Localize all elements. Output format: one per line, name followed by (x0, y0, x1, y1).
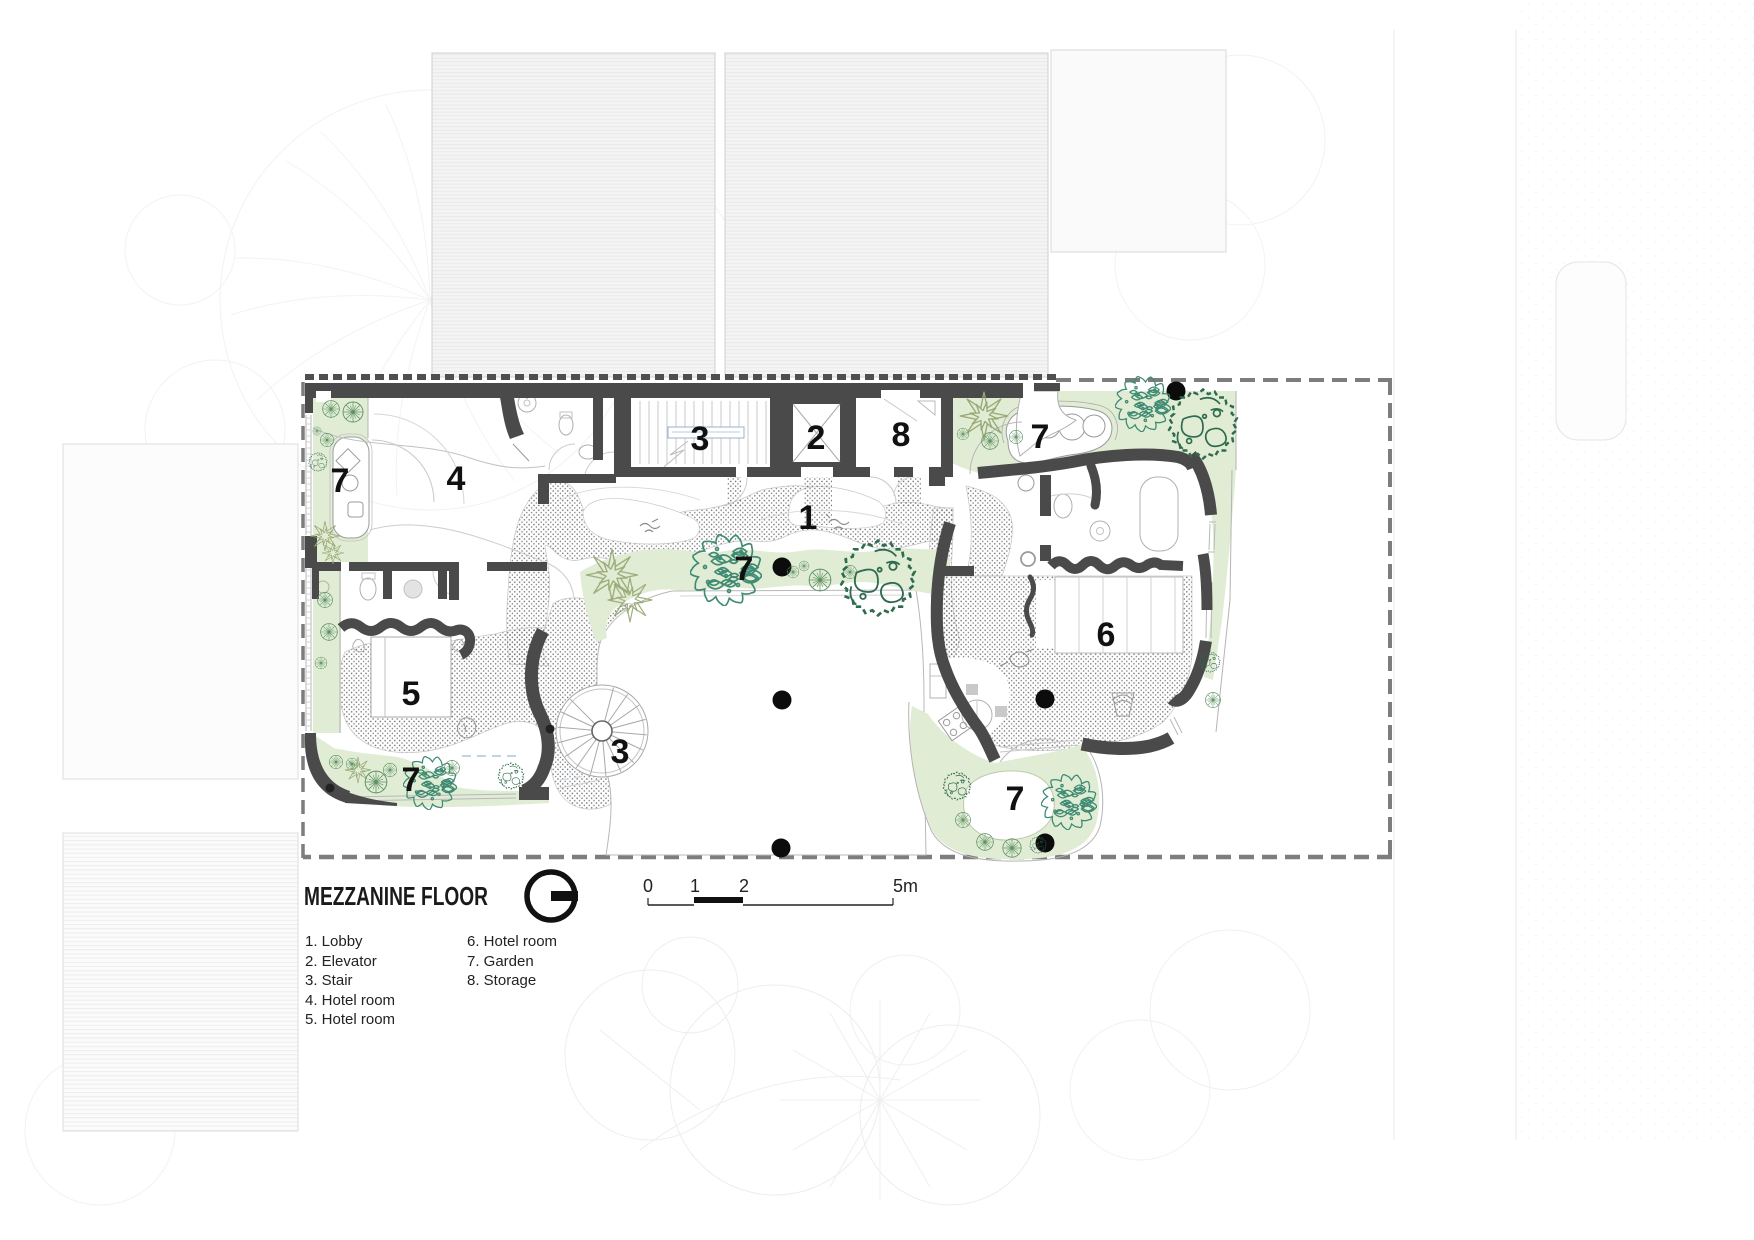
svg-text:7: 7 (735, 550, 754, 588)
svg-text:MEZZANINE FLOOR: MEZZANINE FLOOR (304, 881, 488, 911)
svg-text:6. Hotel room: 6. Hotel room (467, 933, 557, 950)
svg-text:5. Hotel room: 5. Hotel room (305, 1011, 395, 1028)
svg-text:5m: 5m (893, 876, 918, 896)
svg-text:1: 1 (690, 876, 700, 896)
svg-text:1. Lobby: 1. Lobby (305, 933, 363, 950)
svg-text:7: 7 (1031, 418, 1050, 456)
svg-text:0: 0 (643, 876, 653, 896)
svg-text:8: 8 (892, 416, 911, 454)
svg-text:5: 5 (402, 675, 421, 713)
svg-text:8. Storage: 8. Storage (467, 972, 536, 989)
svg-text:3: 3 (691, 420, 710, 458)
svg-text:7: 7 (1006, 780, 1025, 818)
svg-text:2. Elevator: 2. Elevator (305, 953, 377, 970)
svg-text:7: 7 (331, 462, 350, 500)
svg-text:4: 4 (447, 460, 466, 498)
svg-text:2: 2 (807, 419, 826, 457)
svg-text:3: 3 (611, 733, 630, 771)
svg-text:7. Garden: 7. Garden (467, 953, 534, 970)
svg-text:3. Stair: 3. Stair (305, 972, 353, 989)
svg-text:1: 1 (799, 499, 818, 537)
svg-text:2: 2 (739, 876, 749, 896)
svg-text:7: 7 (402, 761, 421, 799)
svg-text:4. Hotel room: 4. Hotel room (305, 992, 395, 1009)
svg-text:6: 6 (1097, 616, 1116, 654)
